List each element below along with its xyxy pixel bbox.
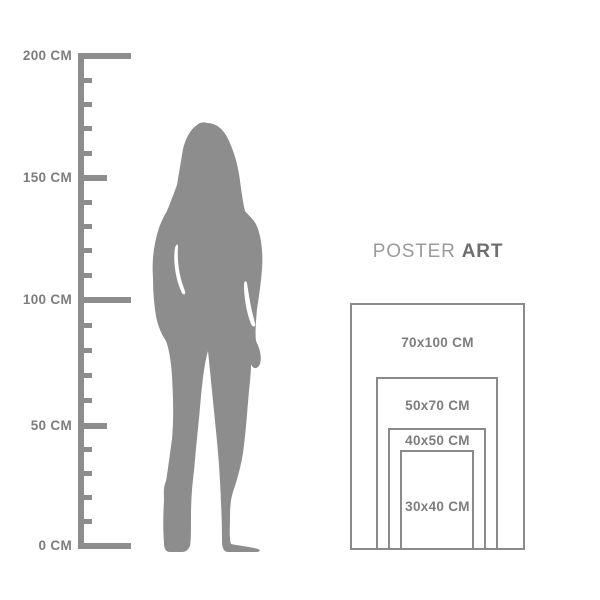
poster-size-label-50x70: 50x70 CM — [350, 399, 525, 413]
poster-size-guide: 200 CM 150 CM 100 CM 50 CM 0 CM POSTER A… — [0, 0, 600, 600]
brand-title-bold: ART — [462, 241, 503, 262]
poster-size-label-40x50: 40x50 CM — [350, 434, 525, 448]
brand-title-regular: POSTER — [373, 241, 456, 262]
poster-size-label-30x40: 30x40 CM — [350, 500, 525, 514]
poster-size-label-70x100: 70x100 CM — [350, 336, 525, 350]
brand-title: POSTER ART — [350, 242, 526, 262]
